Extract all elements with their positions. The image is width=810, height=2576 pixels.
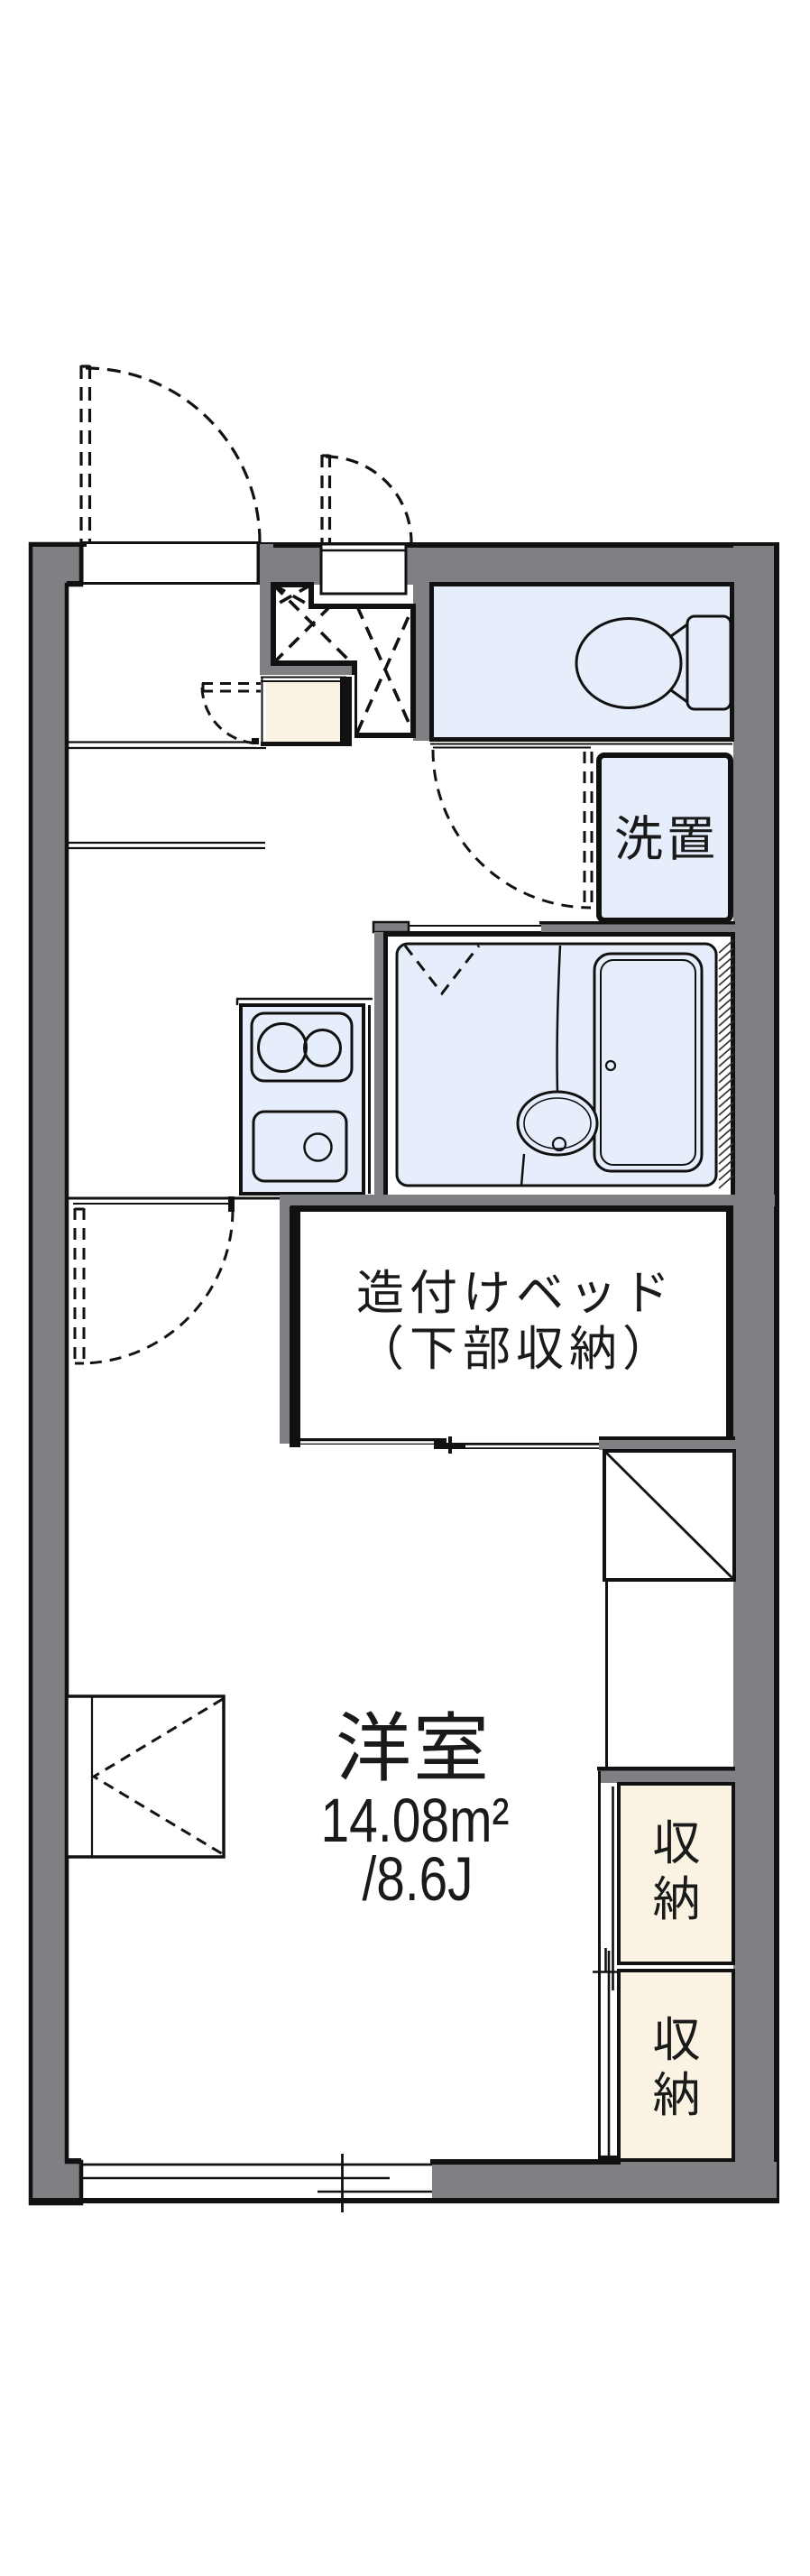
svg-text:/8.6J: /8.6J [363,1844,474,1914]
